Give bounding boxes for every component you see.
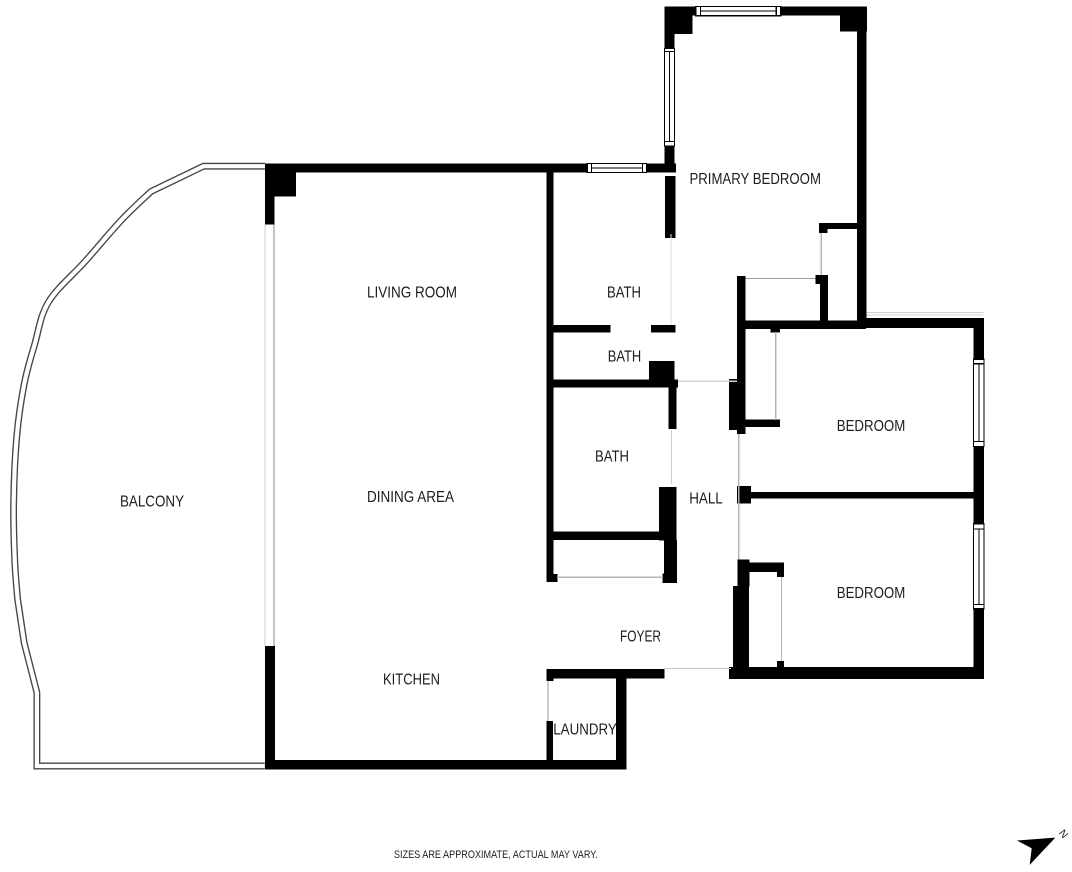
svg-text:FOYER: FOYER	[620, 629, 661, 646]
svg-text:BATH: BATH	[595, 449, 629, 466]
svg-text:BALCONY: BALCONY	[120, 494, 184, 511]
svg-text:BEDROOM: BEDROOM	[837, 418, 906, 435]
svg-text:SIZES ARE APPROXIMATE, ACTUAL: SIZES ARE APPROXIMATE, ACTUAL MAY VARY.	[394, 849, 598, 861]
svg-text:DINING AREA: DINING AREA	[367, 489, 454, 506]
svg-text:BEDROOM: BEDROOM	[837, 585, 906, 602]
svg-text:BATH: BATH	[608, 349, 642, 366]
svg-text:LAUNDRY: LAUNDRY	[553, 722, 617, 739]
svg-text:KITCHEN: KITCHEN	[383, 672, 440, 689]
svg-text:HALL: HALL	[689, 491, 723, 508]
svg-text:BATH: BATH	[607, 285, 641, 302]
svg-text:PRIMARY BEDROOM: PRIMARY BEDROOM	[689, 171, 821, 188]
svg-text:LIVING ROOM: LIVING ROOM	[367, 285, 457, 302]
